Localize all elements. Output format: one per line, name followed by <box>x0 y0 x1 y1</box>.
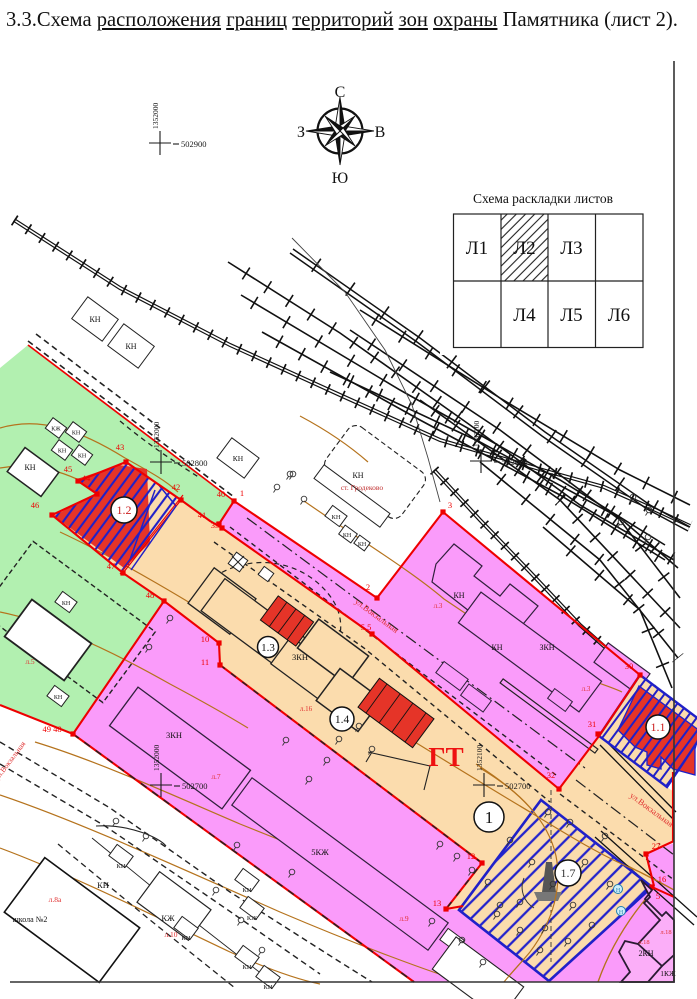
svg-text:1.3: 1.3 <box>261 642 275 654</box>
svg-text:КН: КН <box>453 591 464 600</box>
svg-text:502700: 502700 <box>182 781 208 791</box>
svg-text:л.18: л.18 <box>660 929 671 936</box>
svg-text:КЖ: КЖ <box>247 915 257 922</box>
svg-text:КН: КН <box>78 454 87 460</box>
svg-text:502800: 502800 <box>182 458 208 468</box>
svg-text:47: 47 <box>107 561 116 571</box>
svg-text:л.10: л.10 <box>164 930 177 939</box>
svg-text:Н: Н <box>619 910 624 916</box>
svg-text:Л3: Л3 <box>560 238 582 259</box>
svg-text:КН: КН <box>116 863 125 870</box>
svg-text:л.5: л.5 <box>25 657 35 666</box>
svg-text:44: 44 <box>82 473 91 483</box>
svg-text:1.1: 1.1 <box>651 720 666 734</box>
svg-text:л.3: л.3 <box>582 685 591 693</box>
svg-text:В: В <box>375 124 386 141</box>
svg-text:5КЖ: 5КЖ <box>311 847 329 857</box>
svg-text:2: 2 <box>366 582 370 592</box>
svg-text:502800: 502800 <box>502 457 528 467</box>
svg-text:40: 40 <box>217 489 226 499</box>
svg-text:л.16: л.16 <box>300 705 313 713</box>
svg-text:КН: КН <box>358 542 367 548</box>
svg-text:1352000: 1352000 <box>152 422 161 449</box>
svg-text:41: 41 <box>198 510 207 520</box>
svg-text:КЖ: КЖ <box>51 427 61 433</box>
svg-text:30: 30 <box>625 661 634 671</box>
svg-text:2КН: 2КН <box>638 949 653 958</box>
svg-text:КН: КН <box>263 984 272 991</box>
svg-text:Схема раскладки листов: Схема раскладки листов <box>473 191 613 206</box>
svg-text:КН: КН <box>54 695 63 701</box>
svg-text:л.3: л.3 <box>434 602 443 610</box>
svg-text:Ю: Ю <box>332 170 348 187</box>
svg-text:1.7: 1.7 <box>561 866 576 880</box>
svg-text:Л6: Л6 <box>608 305 630 326</box>
svg-text:л.8а: л.8а <box>49 895 62 904</box>
svg-text:л.18: л.18 <box>638 939 649 946</box>
svg-text:ул.Вокзальная: ул.Вокзальная <box>0 739 28 781</box>
svg-text:л.9: л.9 <box>399 914 409 923</box>
svg-text:ст. Гродеково: ст. Гродеково <box>341 483 384 492</box>
svg-text:КН: КН <box>97 880 109 890</box>
svg-text:Л1: Л1 <box>466 238 488 259</box>
svg-text:1352100: 1352100 <box>475 745 484 772</box>
svg-text:КН: КН <box>242 887 251 894</box>
svg-text:1.2: 1.2 <box>117 503 132 517</box>
svg-text:КН: КН <box>181 935 190 942</box>
svg-text:48: 48 <box>146 590 155 600</box>
svg-text:КН: КН <box>242 964 251 971</box>
svg-text:ЗКН: ЗКН <box>539 643 554 652</box>
svg-text:43: 43 <box>116 442 125 452</box>
svg-text:КН: КН <box>72 431 81 437</box>
svg-text:502700: 502700 <box>505 781 531 791</box>
svg-text:Л4: Л4 <box>513 305 536 326</box>
svg-text:32: 32 <box>547 770 556 780</box>
svg-text:27: 27 <box>652 841 661 851</box>
svg-text:1352100: 1352100 <box>472 421 481 448</box>
svg-text:л.7: л.7 <box>211 772 221 781</box>
svg-text:КН: КН <box>125 342 136 351</box>
svg-text:46: 46 <box>31 500 40 510</box>
svg-text:11: 11 <box>201 657 209 667</box>
svg-text:ГТ: ГТ <box>428 742 463 772</box>
svg-text:31: 31 <box>588 719 597 729</box>
svg-text:школа №2: школа №2 <box>13 915 48 924</box>
svg-text:КН: КН <box>343 533 352 539</box>
svg-text:12: 12 <box>467 851 476 861</box>
svg-text:1352000: 1352000 <box>152 745 161 772</box>
svg-text:З: З <box>297 124 305 141</box>
svg-text:49 48: 49 48 <box>42 724 61 734</box>
svg-text:1352000: 1352000 <box>151 103 160 130</box>
svg-text:КН: КН <box>233 454 244 463</box>
svg-text:42: 42 <box>172 482 181 492</box>
svg-text:16: 16 <box>658 874 667 884</box>
svg-text:13: 13 <box>433 898 442 908</box>
svg-text:С: С <box>335 84 346 101</box>
svg-text:Н: Н <box>616 888 621 894</box>
svg-text:5: 5 <box>656 891 660 901</box>
svg-text:3: 3 <box>448 500 452 510</box>
svg-text:1.4: 1.4 <box>335 714 350 726</box>
svg-text:1: 1 <box>485 808 494 827</box>
svg-text:КН: КН <box>62 601 71 607</box>
svg-text:45: 45 <box>64 464 73 474</box>
svg-text:КН: КН <box>89 315 100 324</box>
svg-text:КН: КН <box>58 449 67 455</box>
svg-text:Л5: Л5 <box>560 305 582 326</box>
svg-text:КН: КН <box>24 463 35 472</box>
svg-text:КН: КН <box>331 514 340 521</box>
svg-text:35: 35 <box>211 520 220 530</box>
svg-text:502900: 502900 <box>181 139 207 149</box>
svg-text:КН: КН <box>491 643 502 652</box>
svg-text:КН: КН <box>352 471 363 480</box>
svg-text:Л2: Л2 <box>513 238 535 259</box>
svg-text:1: 1 <box>240 488 244 498</box>
svg-text:КЖ: КЖ <box>161 913 175 923</box>
svg-text:5,5: 5,5 <box>361 622 372 632</box>
svg-text:3КН: 3КН <box>166 730 182 740</box>
svg-text:10: 10 <box>201 634 210 644</box>
